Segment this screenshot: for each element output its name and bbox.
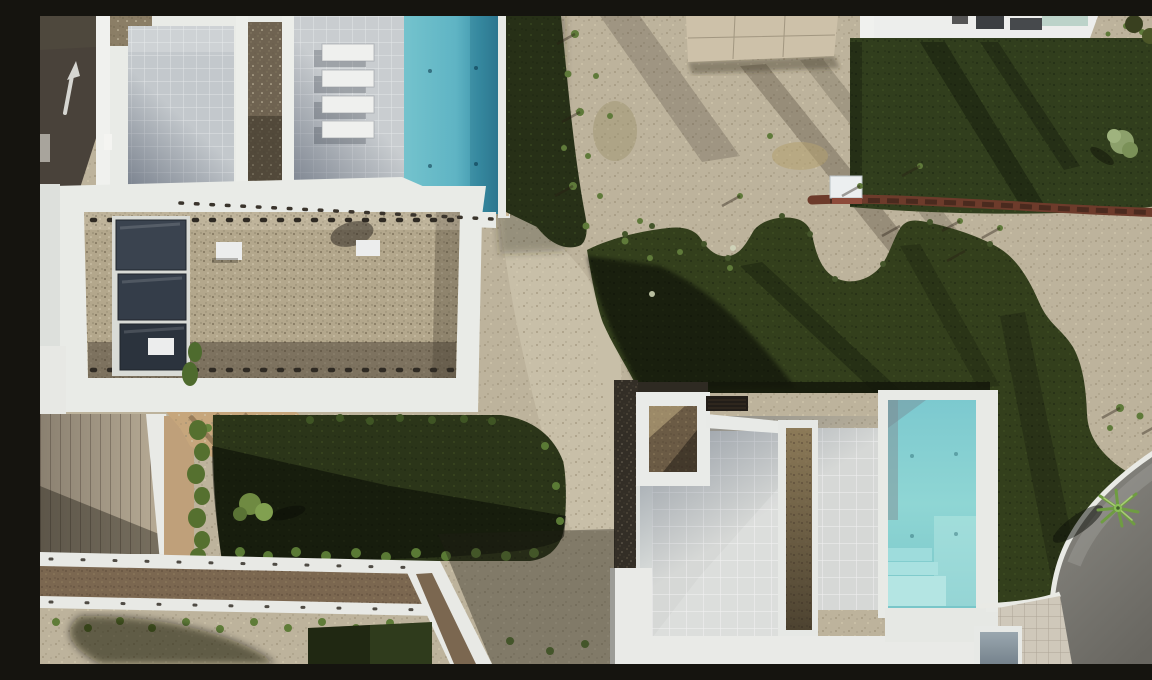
tree-bl-light [255, 503, 273, 521]
sun-lounger-2 [322, 70, 374, 87]
pool-center-right-rim [986, 390, 998, 612]
road-edge-sign [40, 134, 50, 162]
roof-vent-2 [356, 240, 380, 256]
roof-tr-panel-3 [952, 16, 968, 24]
villa-tl-courtyard-shadow [128, 52, 234, 192]
villa-tl-upper-tiles-grid [128, 26, 234, 52]
tree-bl-dark [233, 507, 247, 521]
roof-tr-glass [1042, 16, 1088, 26]
villa-c-dark-gravel-tex [614, 380, 638, 576]
villa-tl-wall-left [96, 16, 110, 196]
dry-bush-center [772, 142, 828, 170]
concrete-pad [686, 16, 840, 74]
pool-step-1 [888, 548, 932, 561]
pool-step-2 [888, 562, 938, 575]
pad-slab [686, 16, 838, 62]
scene-svg [40, 16, 1152, 664]
lawn-light-tuft-1 [730, 245, 736, 251]
blue-grey-roof [980, 632, 1018, 664]
roof-vent-1-shadow [212, 258, 238, 263]
palm-core [1116, 506, 1120, 510]
lawn-patch-shade [308, 625, 370, 664]
aerial-photo [40, 16, 1152, 664]
gravel-roof-shadow-right [432, 212, 460, 378]
pool-top-deep-band [470, 16, 498, 212]
villa-center [610, 380, 998, 664]
ac-unit-red-planting [832, 198, 862, 204]
sun-lounger-1 [322, 44, 374, 61]
dry-bush-left [593, 101, 637, 161]
planter-gravel-shade [786, 428, 812, 630]
roof-vent-1 [216, 242, 242, 260]
sun-lounger-4 [322, 121, 374, 138]
left-white-block [40, 346, 66, 420]
tree-tr-lower [1122, 142, 1138, 158]
ac-unit [830, 176, 862, 204]
lawn-light-tuft-2 [649, 291, 655, 297]
tree-tr-highlight [1107, 129, 1121, 143]
gravel-roof-building [56, 186, 492, 412]
villa-tl-wall-1 [236, 16, 248, 194]
roof-tr-panel-2 [1010, 18, 1042, 30]
roof-vent-3 [148, 338, 174, 355]
roof-tr-panel-1 [976, 16, 1004, 29]
villa-tl-door-detail [104, 134, 112, 150]
villa-tl-wall-2 [282, 16, 294, 194]
pool-step-3 [888, 576, 946, 606]
sun-lounger-3 [322, 96, 374, 113]
villa-tl-gravel-strip-shade [248, 116, 282, 190]
